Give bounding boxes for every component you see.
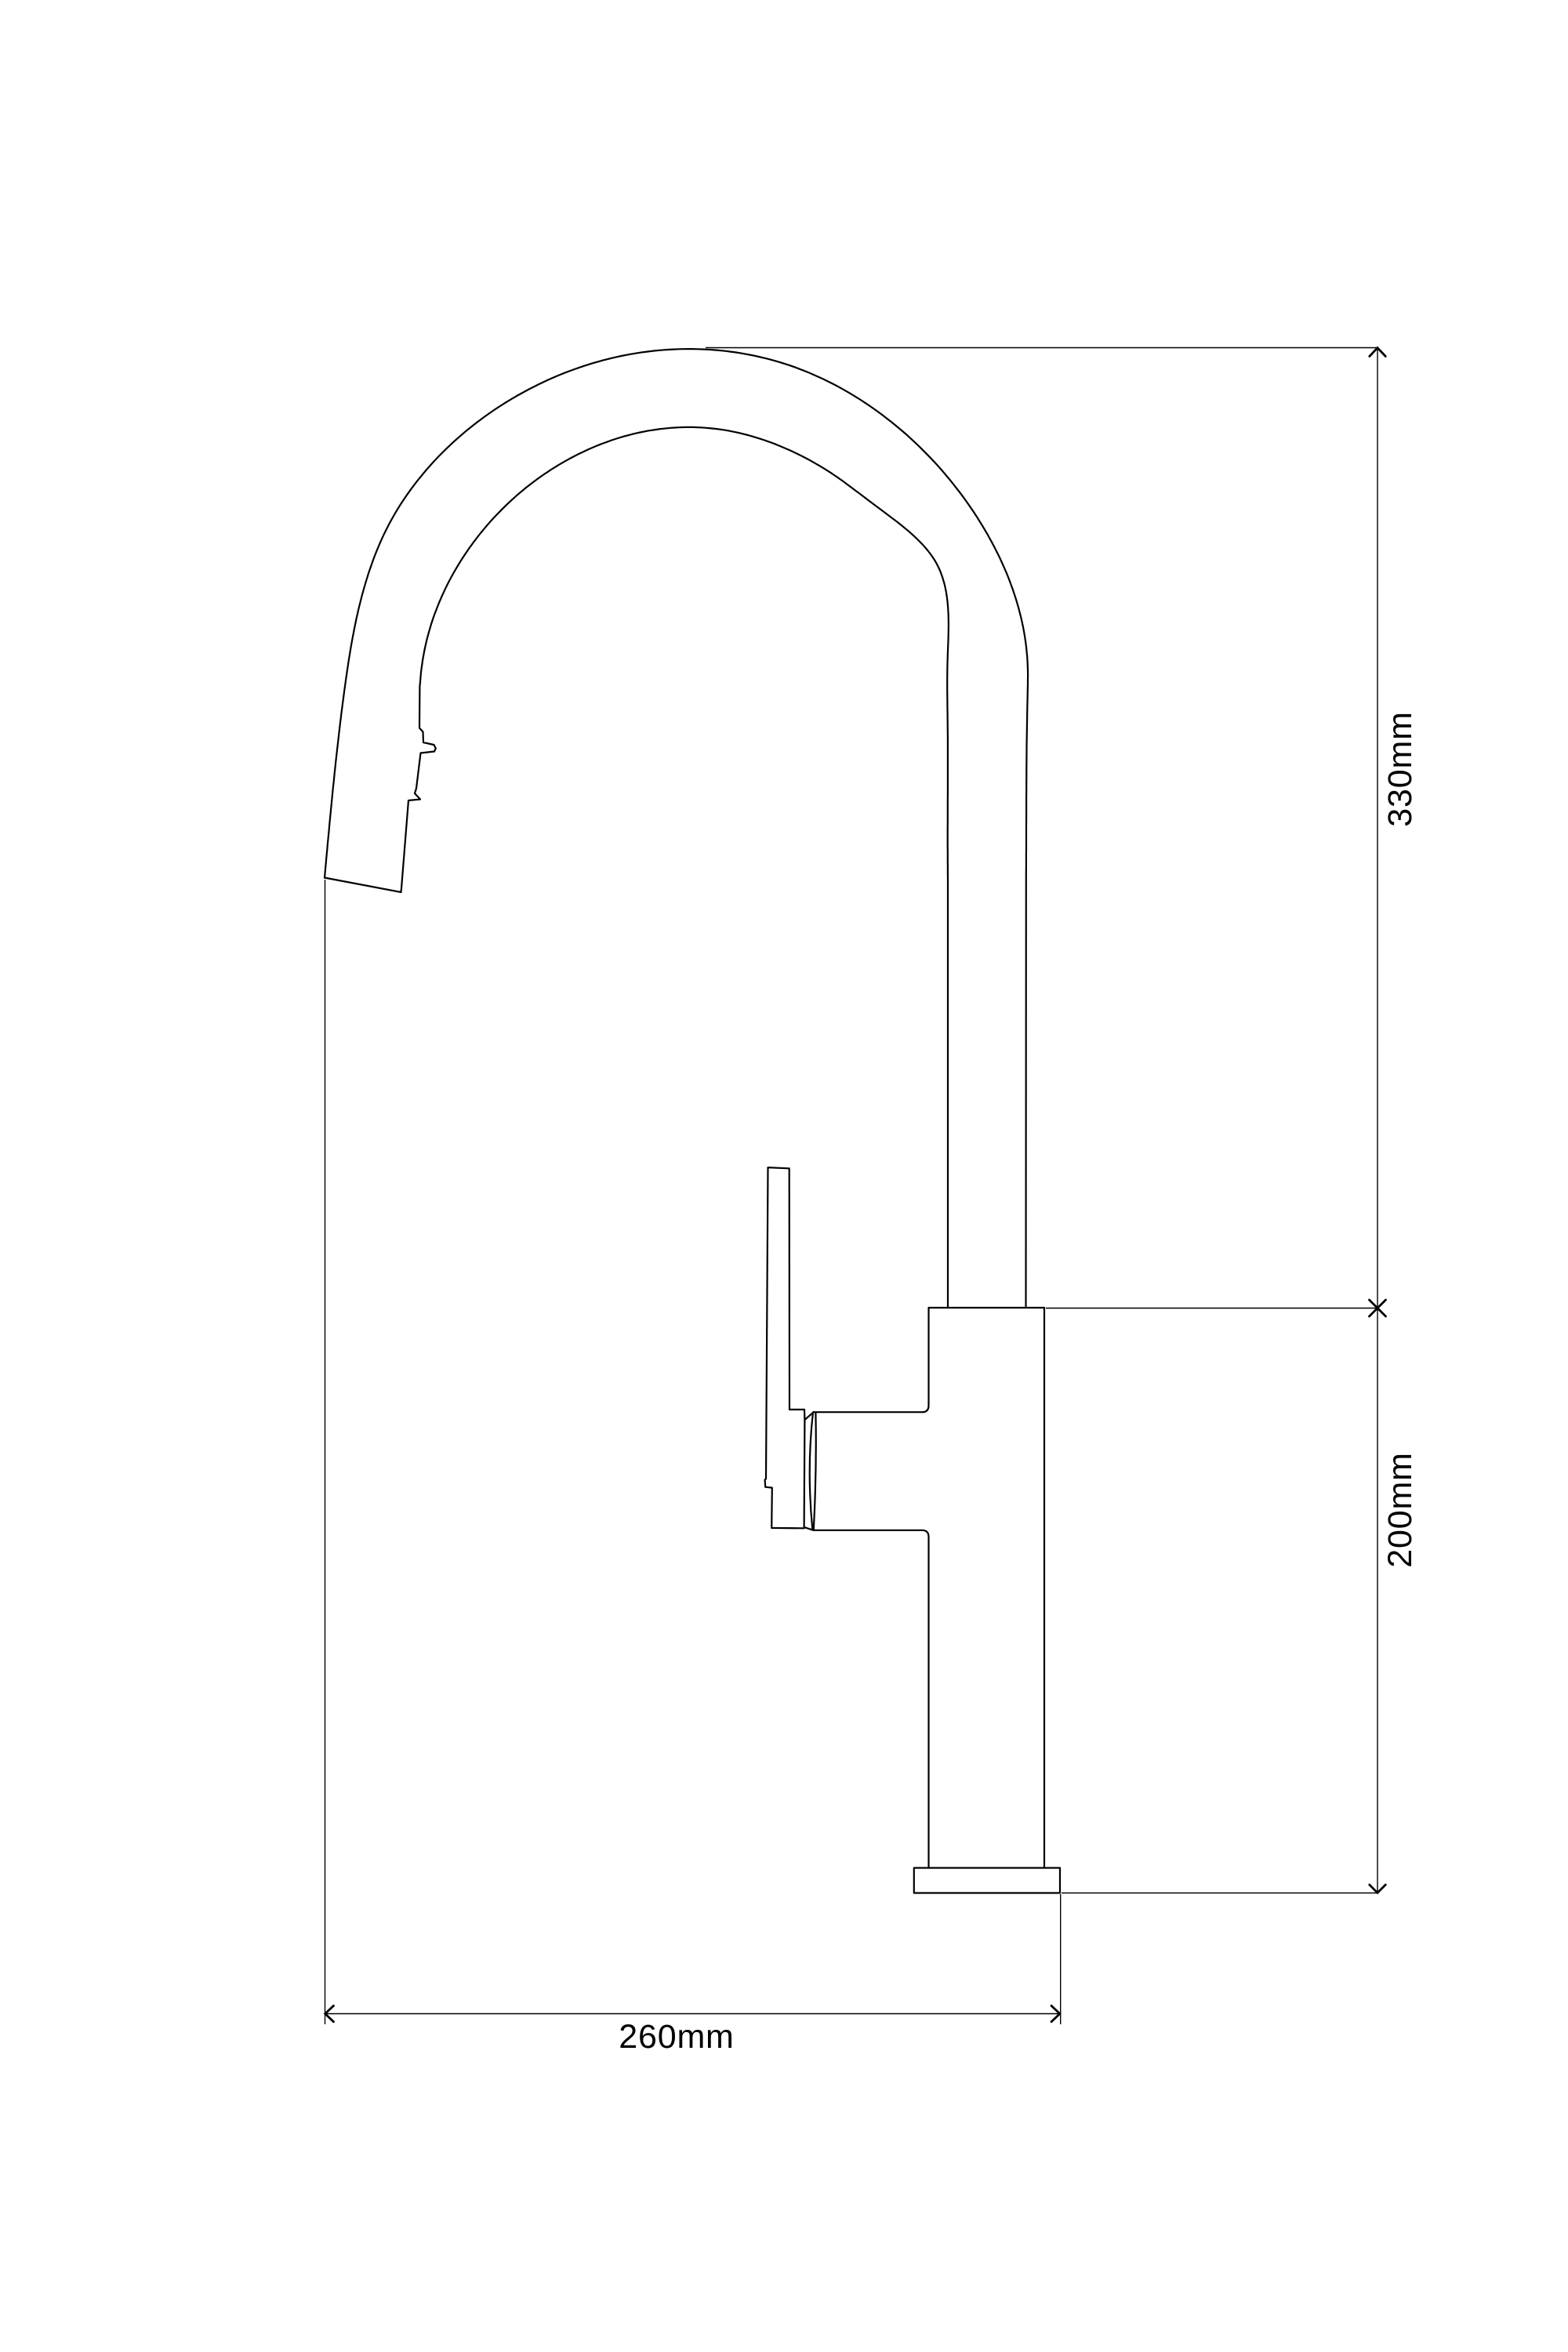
svg-text:200mm: 200mm	[1381, 1452, 1419, 1567]
svg-text:330mm: 330mm	[1381, 711, 1419, 826]
svg-text:260mm: 260mm	[619, 2018, 734, 2056]
